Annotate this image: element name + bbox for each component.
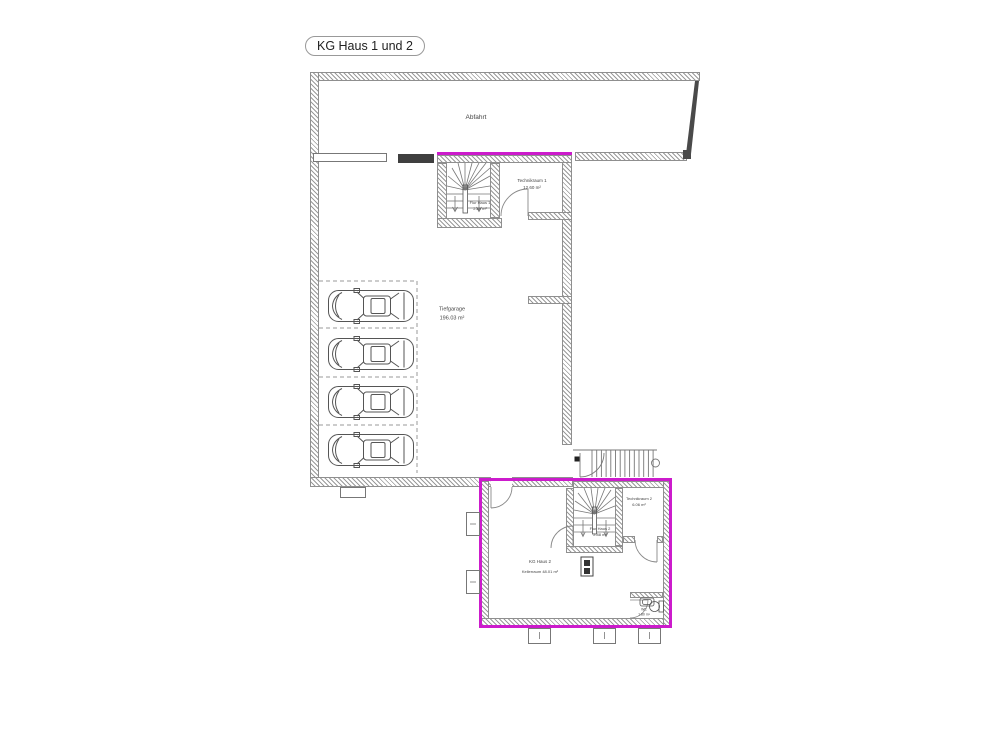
room-name: KG Haus 2 bbox=[522, 559, 558, 566]
wall-abfahrt-right-slant bbox=[683, 81, 699, 159]
room-area: 2.88 m² bbox=[590, 532, 611, 538]
shaft-symbol bbox=[581, 557, 593, 576]
label-kg-haus2: KG Haus 2 Kellerraum 48.01 m² bbox=[522, 559, 558, 575]
toilet-icon bbox=[650, 601, 664, 612]
light-well-ticks bbox=[470, 524, 650, 639]
stair-external bbox=[573, 450, 660, 477]
label-abfahrt: Abfahrt bbox=[466, 113, 487, 123]
door-technik2 bbox=[635, 540, 657, 562]
door-technik1 bbox=[501, 189, 528, 216]
car-icon bbox=[329, 385, 414, 420]
car-icon bbox=[329, 289, 414, 324]
label-flur-haus2: Flur Haus 2 2.88 m² bbox=[590, 526, 611, 538]
label-flur-haus1: Flur Haus 1 2.89 m² bbox=[470, 200, 491, 212]
label-tiefgarage: Tiefgarage 196.03 m² bbox=[439, 305, 465, 322]
car-icon bbox=[329, 433, 414, 468]
room-area: 1.80 m² bbox=[638, 613, 650, 618]
label-technikraum1: Technikraum 1 12.60 m² bbox=[517, 178, 546, 192]
door-flur2 bbox=[551, 526, 573, 548]
floor-plan: KG Haus 1 und 2 bbox=[0, 0, 1000, 750]
room-area: 196.03 m² bbox=[439, 314, 465, 323]
room-area: 12.60 m² bbox=[517, 185, 546, 192]
door-garage-unit bbox=[491, 487, 512, 508]
car-icon bbox=[329, 337, 414, 372]
room-name: Technikraum 1 bbox=[517, 178, 546, 185]
plan-linework bbox=[0, 0, 1000, 750]
room-area: 6.06 m² bbox=[626, 502, 652, 508]
label-technikraum2: Technikraum 2 6.06 m² bbox=[626, 496, 652, 508]
room-area: 2.89 m² bbox=[470, 206, 491, 212]
room-area: Kellerraum 48.01 m² bbox=[522, 569, 558, 575]
room-name: Tiefgarage bbox=[439, 305, 465, 314]
label-wc: WC 1.80 m² bbox=[638, 608, 650, 619]
